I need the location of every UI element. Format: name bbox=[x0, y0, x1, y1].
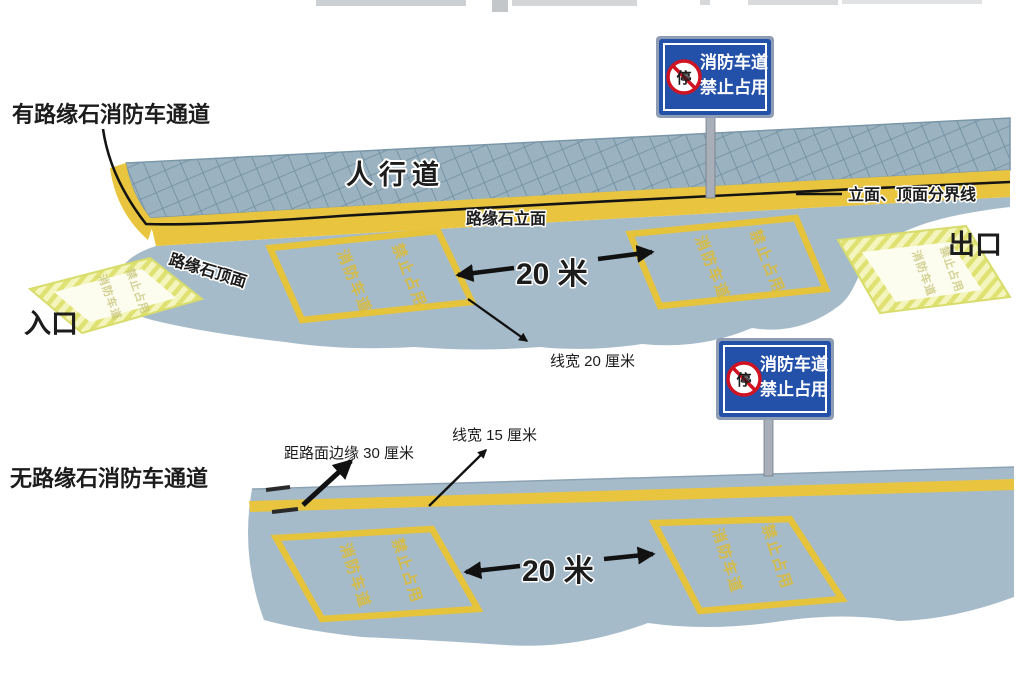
bottom-title: 无路缘石消防车通道 bbox=[10, 466, 208, 491]
boundary-line-label: 立面、顶面分界线 bbox=[848, 185, 976, 204]
sign-line2: 禁止占用 bbox=[700, 77, 768, 97]
fire-lane-sign-bottom: 停 消防车道 禁止占用 bbox=[716, 338, 834, 476]
entrance-label: 入口 bbox=[24, 309, 78, 339]
no-stopping-badge-char: 停 bbox=[676, 69, 691, 87]
sign-pole bbox=[706, 114, 715, 198]
sidewalk-label: 人行道 bbox=[346, 159, 445, 190]
sign-line2: 禁止占用 bbox=[760, 379, 828, 399]
no-stopping-badge-char: 停 bbox=[736, 371, 751, 389]
top-diagram: 消防车道 禁止占用 消防车道 禁止占用 消防车道 禁止占用 消防车道 禁止占用 … bbox=[12, 36, 1010, 370]
length-label: 20 米 bbox=[522, 555, 594, 588]
fire-lane-spec-page: 消防车道 禁止占用 消防车道 禁止占用 消防车道 禁止占用 消防车道 禁止占用 … bbox=[0, 0, 1024, 688]
no-stopping-icon: 停 bbox=[728, 363, 760, 395]
sign-pole bbox=[764, 416, 773, 476]
curb-face-label: 路缘石立面 bbox=[466, 209, 546, 228]
sign-line1: 消防车道 bbox=[760, 354, 828, 374]
line-width-label: 线宽 15 厘米 bbox=[452, 427, 537, 444]
edge-offset-label: 距路面边缘 30 厘米 bbox=[284, 445, 414, 462]
bottom-diagram: 消防车道 禁止占用 消防车道 禁止占用 20 米 距路面边缘 30 厘米 线宽 … bbox=[10, 338, 1014, 646]
sign-line1: 消防车道 bbox=[700, 52, 768, 72]
cropped-top-text-remnant bbox=[316, 0, 982, 12]
exit-label: 出口 bbox=[948, 230, 1002, 260]
fire-lane-diagram: 消防车道 禁止占用 消防车道 禁止占用 消防车道 禁止占用 消防车道 禁止占用 … bbox=[0, 0, 1024, 688]
top-title: 有路缘石消防车通道 bbox=[12, 102, 210, 127]
length-label: 20 米 bbox=[516, 258, 588, 291]
no-stopping-icon: 停 bbox=[668, 61, 700, 93]
line-width-label: 线宽 20 厘米 bbox=[550, 353, 635, 370]
